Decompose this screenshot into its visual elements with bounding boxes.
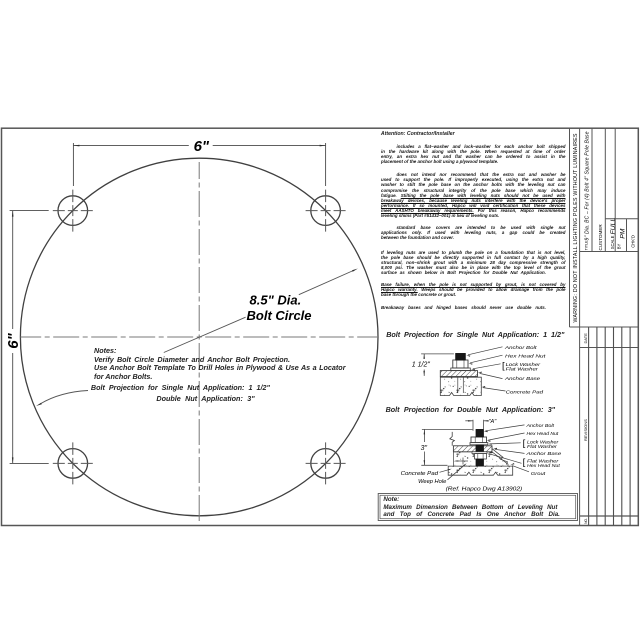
svg-text:Grout: Grout (531, 471, 546, 477)
svg-text:6": 6" (5, 332, 22, 348)
svg-text:8.5" Dia.: 8.5" Dia. (250, 293, 302, 308)
svg-text:Bolt Circle: Bolt Circle (247, 308, 312, 323)
svg-text:WARNING: DO NOT INSTALL LI: WARNING: DO NOT INSTALL LIGHTING POLES W… (573, 133, 579, 323)
svg-text:Anchor Base: Anchor Base (525, 451, 561, 457)
svg-text:9" Dia. BC – For (4) Bolt 4" S: 9" Dia. BC – For (4) Bolt 4" Square Pole… (585, 131, 591, 240)
svg-text:Hex Head Nut: Hex Head Nut (527, 463, 561, 469)
svg-text:PM: PM (619, 228, 626, 239)
svg-text:"A": "A" (489, 419, 498, 425)
svg-text:Anchor Bolt: Anchor Bolt (525, 423, 554, 429)
svg-text:[: [ (523, 438, 526, 449)
svg-text:DATE: DATE (583, 333, 588, 344)
svg-text:SCALE: SCALE (610, 235, 615, 249)
svg-text:Hex Head Nut: Hex Head Nut (527, 431, 559, 437)
svg-text:[: [ (502, 361, 505, 372)
svg-text:Hex Head Nut: Hex Head Nut (505, 353, 546, 359)
svg-text:Concrete Pad: Concrete Pad (401, 471, 440, 477)
svg-text:Anchor Base: Anchor Base (504, 376, 541, 382)
svg-text:3": 3" (421, 445, 428, 452)
svg-text:NO.: NO. (584, 518, 588, 524)
svg-text:6": 6" (194, 138, 210, 155)
svg-text:Concrete Pad: Concrete Pad (506, 389, 544, 395)
svg-text:[: [ (523, 457, 526, 468)
svg-text:CHK'D: CHK'D (630, 235, 635, 248)
svg-text:1 1/2": 1 1/2" (412, 362, 431, 369)
svg-text:Flat Washer: Flat Washer (506, 367, 539, 373)
svg-text:REVISIONS: REVISIONS (583, 419, 588, 441)
svg-text:(Ref. Hapco Dwg A13902): (Ref. Hapco Dwg A13902) (446, 487, 523, 493)
svg-text:CUSTOMER: CUSTOMER (598, 224, 603, 251)
svg-text:Flat Washer: Flat Washer (527, 444, 557, 450)
svg-text:Weep Hole: Weep Hole (418, 479, 446, 485)
svg-text:BY: BY (617, 244, 622, 250)
svg-text:FULL: FULL (610, 218, 617, 235)
svg-text:Anchor Bolt: Anchor Bolt (504, 345, 538, 351)
